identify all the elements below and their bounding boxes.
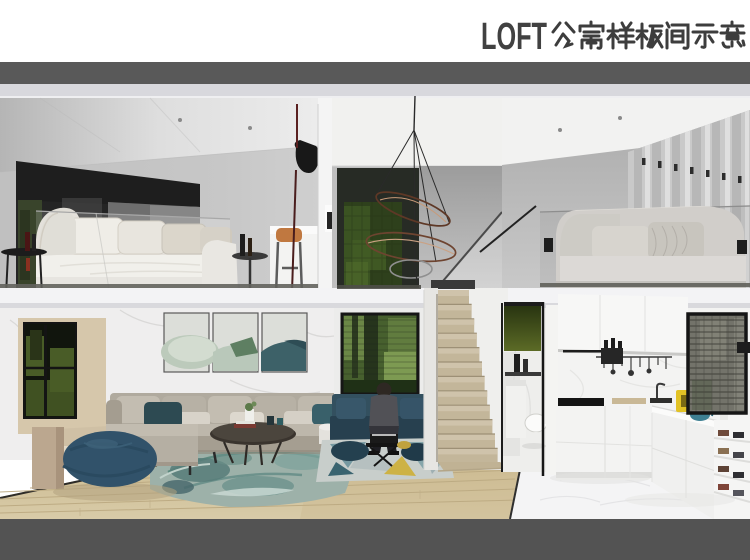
svg-text:LOFT: LOFT (481, 16, 547, 58)
